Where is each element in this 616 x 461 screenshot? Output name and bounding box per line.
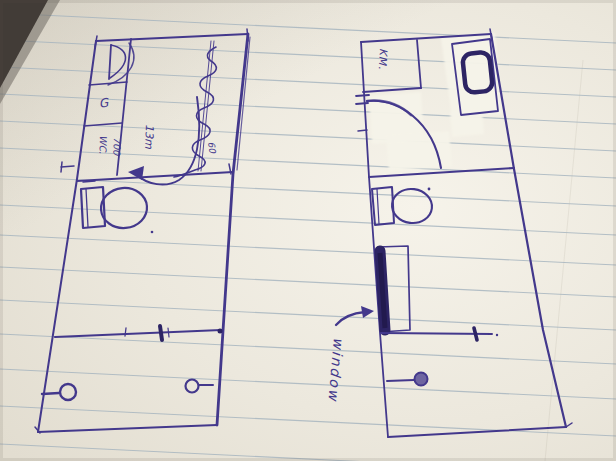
hinge-tick [358,130,367,131]
whiteout-patch [386,131,452,171]
dim-700-label: 700 [111,137,123,156]
ink-dot [496,334,498,336]
wall-tick [83,181,95,182]
wall-tick-bold [160,326,162,340]
km-room-label: KM. [377,48,390,71]
wc-label: WC. [97,135,109,154]
notebook-photo: G WC. 700 60 13m [0,0,616,461]
ink-dot [151,231,154,234]
wall-tick [61,166,74,167]
hinge-tick [356,103,368,104]
handle-stem [42,393,59,394]
handle-stem [387,380,414,381]
ink-dot [428,188,431,191]
handle-knob [415,373,428,386]
ink-dot [218,329,223,334]
wall-tick [61,162,62,172]
dim-13m-label: 13m [142,124,156,149]
hinge-tick [356,95,369,96]
